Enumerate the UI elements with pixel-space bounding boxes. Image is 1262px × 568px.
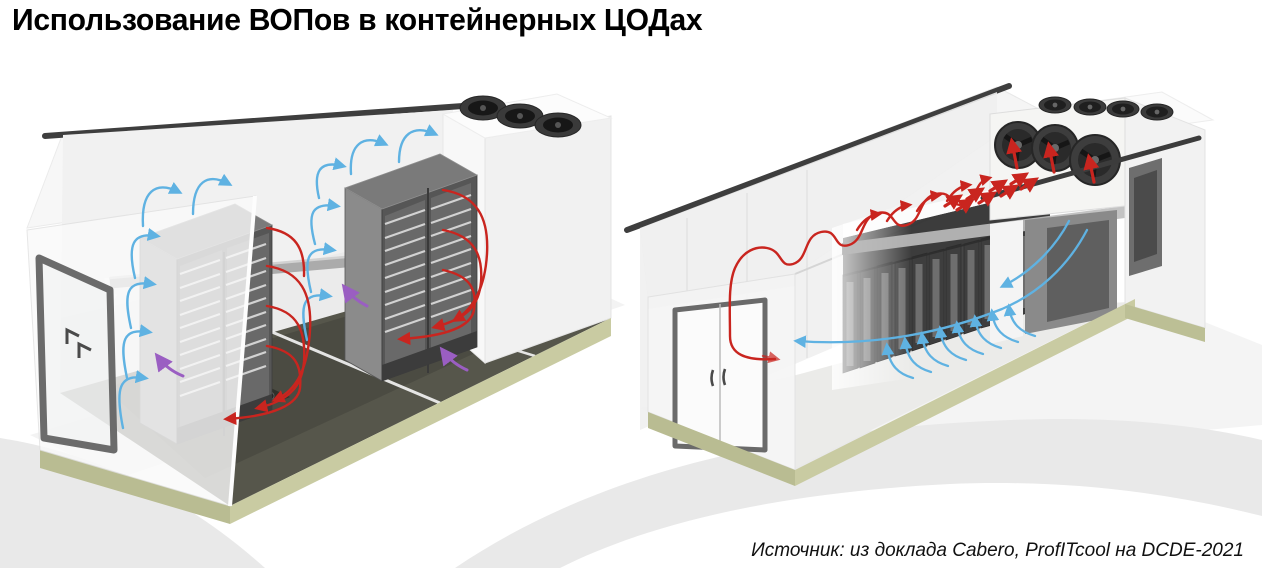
server-rack-2 xyxy=(345,154,477,381)
door-frame xyxy=(675,300,765,450)
source-caption: Источник: из доклада Cabero, ProfITcool … xyxy=(751,540,1244,562)
slide-title: Использование ВОПов в контейнерных ЦОДах xyxy=(12,2,702,38)
slide: { "slide": { "title": "Использование ВОП… xyxy=(0,0,1262,568)
door-frame xyxy=(39,258,114,450)
diagram-container-rack-row xyxy=(617,78,1262,513)
diagram-container-two-racks xyxy=(15,78,615,533)
end-wall-with-door xyxy=(648,274,795,470)
